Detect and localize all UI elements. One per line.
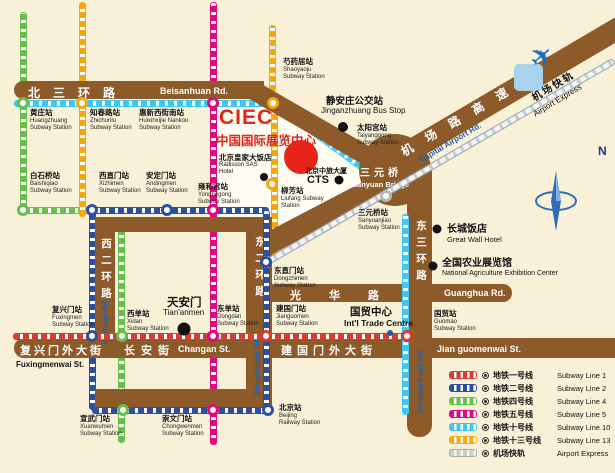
road-label-dongerhuan-en: Dongerhuan Rd. [253,337,262,395]
legend-item-line-13: 地铁十三号线Subway Line 13 [449,436,610,444]
station-andingmen [161,204,173,216]
poi-dot-radisson-sas-hotel [260,173,268,181]
station-huixinxijie-nankou [207,97,219,109]
legend-label-zh-line-13: 地铁十三号线 [493,435,557,446]
subway-line-2-east [263,210,270,410]
station-label-yonghegong: 雍和宫站YonghegongSubway Station [198,183,240,205]
station-label-andingmen: 安定门站AndingmenSubway Station [146,172,188,194]
road-label-fuxingmenwai-zh: 复兴门外大街 [20,342,104,358]
legend-line-swatch-line-13 [449,436,477,444]
road-label-fuxingmenwai-en: Fuxingmenwai St. [16,360,84,369]
station-beijing-railway [262,404,274,416]
subway-line-2-north [90,207,269,214]
poi-label-en-agriculture-exhibition-center: National Agriculture Exhibition Center [442,270,558,277]
station-label-chongwenmen: 崇文门站ChongwenmenSubway Station [162,415,204,437]
legend-label-en-line-10: Subway Line 10 [557,423,610,432]
station-label-baishiqiao: 白石桥站BaishiqiaoSubway Station [30,172,72,194]
station-label-xuanwumen: 宣武门站XuanwumenSubway Station [80,415,122,437]
station-jianguomen [260,330,272,342]
station-liufang [266,178,278,190]
station-label-sanyuanqiao: 三元桥站SanyuanjiaoSubway Station [358,209,400,231]
legend-label-en-line-5: Subway Line 5 [557,410,606,419]
legend-station-icon-line-13 [482,437,489,444]
legend-station-icon-line-10 [482,424,489,431]
road-label-dongsanhuan-en: Dongsanhuan Rd. [416,349,425,413]
station-fuxingmen [86,330,98,342]
legend-label-en-line-13: Subway Line 13 [557,436,610,445]
ciec-title: CIEC [219,106,273,130]
legend-item-airport-express: 机场快轨Airport Express [449,449,610,457]
station-chongwenmen [207,404,219,416]
station-label-dongzhimen: 东直门站DongzhimenSubway Station [274,267,316,289]
station-label-fuxingmen: 复兴门站FuxingmenSubway Station [52,306,94,328]
poi-label-zh-agriculture-exhibition-center: 全国农业展览馆 [442,254,512,269]
poi-dot-great-wall-hotel [433,225,442,234]
legend-label-zh-line-10: 地铁十号线 [493,422,557,433]
legend-line-swatch-line-10 [449,423,477,431]
poi-label-en-radisson-sas-hotel: Radisson SAS Hotel [219,162,259,176]
station-guomao [401,330,413,342]
legend-station-icon-line-1 [482,372,489,379]
road-label-sanyuan-zh: 三元桥 [360,164,402,179]
road-label-changan-en: Changan St. [178,344,231,354]
subway-line-4-north [20,12,27,210]
poi-dot-agriculture-exhibition-center [429,262,438,271]
legend-line-swatch-line-5 [449,410,477,418]
station-label-shaoyaoju: 芍药居站ShaoyaojuSubway Station [283,58,325,80]
station-dongzhimen [260,256,272,268]
station-label-xizhimen: 西直门站XizhimenSubway Station [99,172,141,194]
legend-label-zh-line-4: 地铁四号线 [493,396,557,407]
station-label-taiyanggong: 太阳宫站TaiyanggongSubway Station [357,124,399,146]
poi-label-en-great-wall-hotel: Great Wall Hotel [447,235,502,244]
station-label-huangzhuang: 黄庄站HuangzhuangSubway Station [30,109,72,131]
legend-label-en-line-4: Subway Line 4 [557,397,606,406]
road-label-xierhuan-zh: 西二环路 [99,238,114,304]
poi-label-zh-jinganzhuang-bus-stop: 静安庄公交站 [326,93,383,107]
legend-line-swatch-line-1 [449,371,477,379]
legend: 地铁一号线Subway Line 1地铁二号线Subway Line 2地铁四号… [449,371,610,462]
poi-label-zh-great-wall-hotel: 长城饭店 [447,220,487,235]
legend-item-line-1: 地铁一号线Subway Line 1 [449,371,610,379]
legend-item-line-10: 地铁十号线Subway Line 10 [449,423,610,431]
poi-dot-intl-trade-centre [387,330,393,336]
station-label-beijing-railway: 北京站BeijingRailway Station [279,404,320,426]
beijing-ciec-transit-map: 北三环路 Beisanhuan Rd. 机 场 路 高 速 Capital Ai… [0,0,615,473]
legend-item-line-2: 地铁二号线Subway Line 2 [449,384,610,392]
station-label-guomao: 国贸站GuomaoSubway Station [434,310,476,332]
legend-line-swatch-airport-express [449,449,477,457]
road-label-guanghua-en: Guanghua Rd. [444,288,506,298]
station-yonghegong [207,204,219,216]
station-dongdan [207,330,219,342]
station-sanyuanqiao [380,190,392,202]
station-label-dongdan: 东单站DongdanSubway Station [217,305,259,327]
legend-label-zh-airport-express: 机场快轨 [493,448,557,459]
legend-label-zh-line-5: 地铁五号线 [493,409,557,420]
legend-station-icon-line-2 [482,385,489,392]
compass-icon [534,170,578,232]
poi-label-en-jinganzhuang-bus-stop: Jinganzhuang Bus Stop [321,106,406,115]
station-baishiqiao [17,204,29,216]
legend-line-swatch-line-4 [449,397,477,405]
station-label-huixinxijie-nankou: 惠新西街南站Huixinxijie NankouSubway Station [139,109,188,131]
legend-item-line-5: 地铁五号线Subway Line 5 [449,410,610,418]
road-label-jianguomenwai-zh: 建国门外大街 [281,342,377,358]
subway-line-10-east [402,214,409,415]
legend-station-icon-line-4 [482,398,489,405]
subway-line-13-west [79,2,86,217]
poi-dot-cts-tower [335,176,344,185]
station-zhichunlu [76,97,88,109]
legend-line-swatch-line-2 [449,384,477,392]
poi-label-en-cts-tower: CTS [307,174,329,186]
poi-dot-tiananmen [178,323,191,336]
road-label-beisanhuan-en: Beisanhuan Rd. [160,86,228,96]
legend-station-icon-airport-express [482,450,489,457]
legend-label-en-line-1: Subway Line 1 [557,371,606,380]
poi-label-en-tiananmen: Tian'anmen [163,308,204,317]
legend-label-zh-line-1: 地铁一号线 [493,370,557,381]
road-label-dongsanhuan-zh: 东三环路 [414,220,429,286]
legend-label-en-line-2: Subway Line 2 [557,384,606,393]
station-label-zhichunlu: 知春路站ZhichunluSubway Station [90,109,132,131]
legend-item-line-4: 地铁四号线Subway Line 4 [449,397,610,405]
station-huangzhuang [17,97,29,109]
station-label-liufang: 柳芳站Liufang SubwayStation [281,187,324,209]
legend-station-icon-line-5 [482,411,489,418]
poi-label-en-intl-trade-centre: Int'l Trade Centre [344,318,413,328]
legend-label-zh-line-2: 地铁二号线 [493,383,557,394]
north-label: N [598,144,607,158]
station-xizhimen [86,204,98,216]
station-shaoyaoju [267,97,279,109]
station-label-jianguomen: 建国门站JianguomenSubway Station [276,305,318,327]
poi-label-zh-intl-trade-centre: 国贸中心 [350,304,392,319]
legend-label-en-airport-express: Airport Express [557,449,608,458]
subway-line-13-east-upper [269,25,276,92]
road-label-jianguomenwai-en: Jian guomenwai St. [437,344,521,354]
poi-dot-jinganzhuang-bus-stop [338,122,348,132]
road-label-changan-zh: 长安街 [124,342,175,358]
